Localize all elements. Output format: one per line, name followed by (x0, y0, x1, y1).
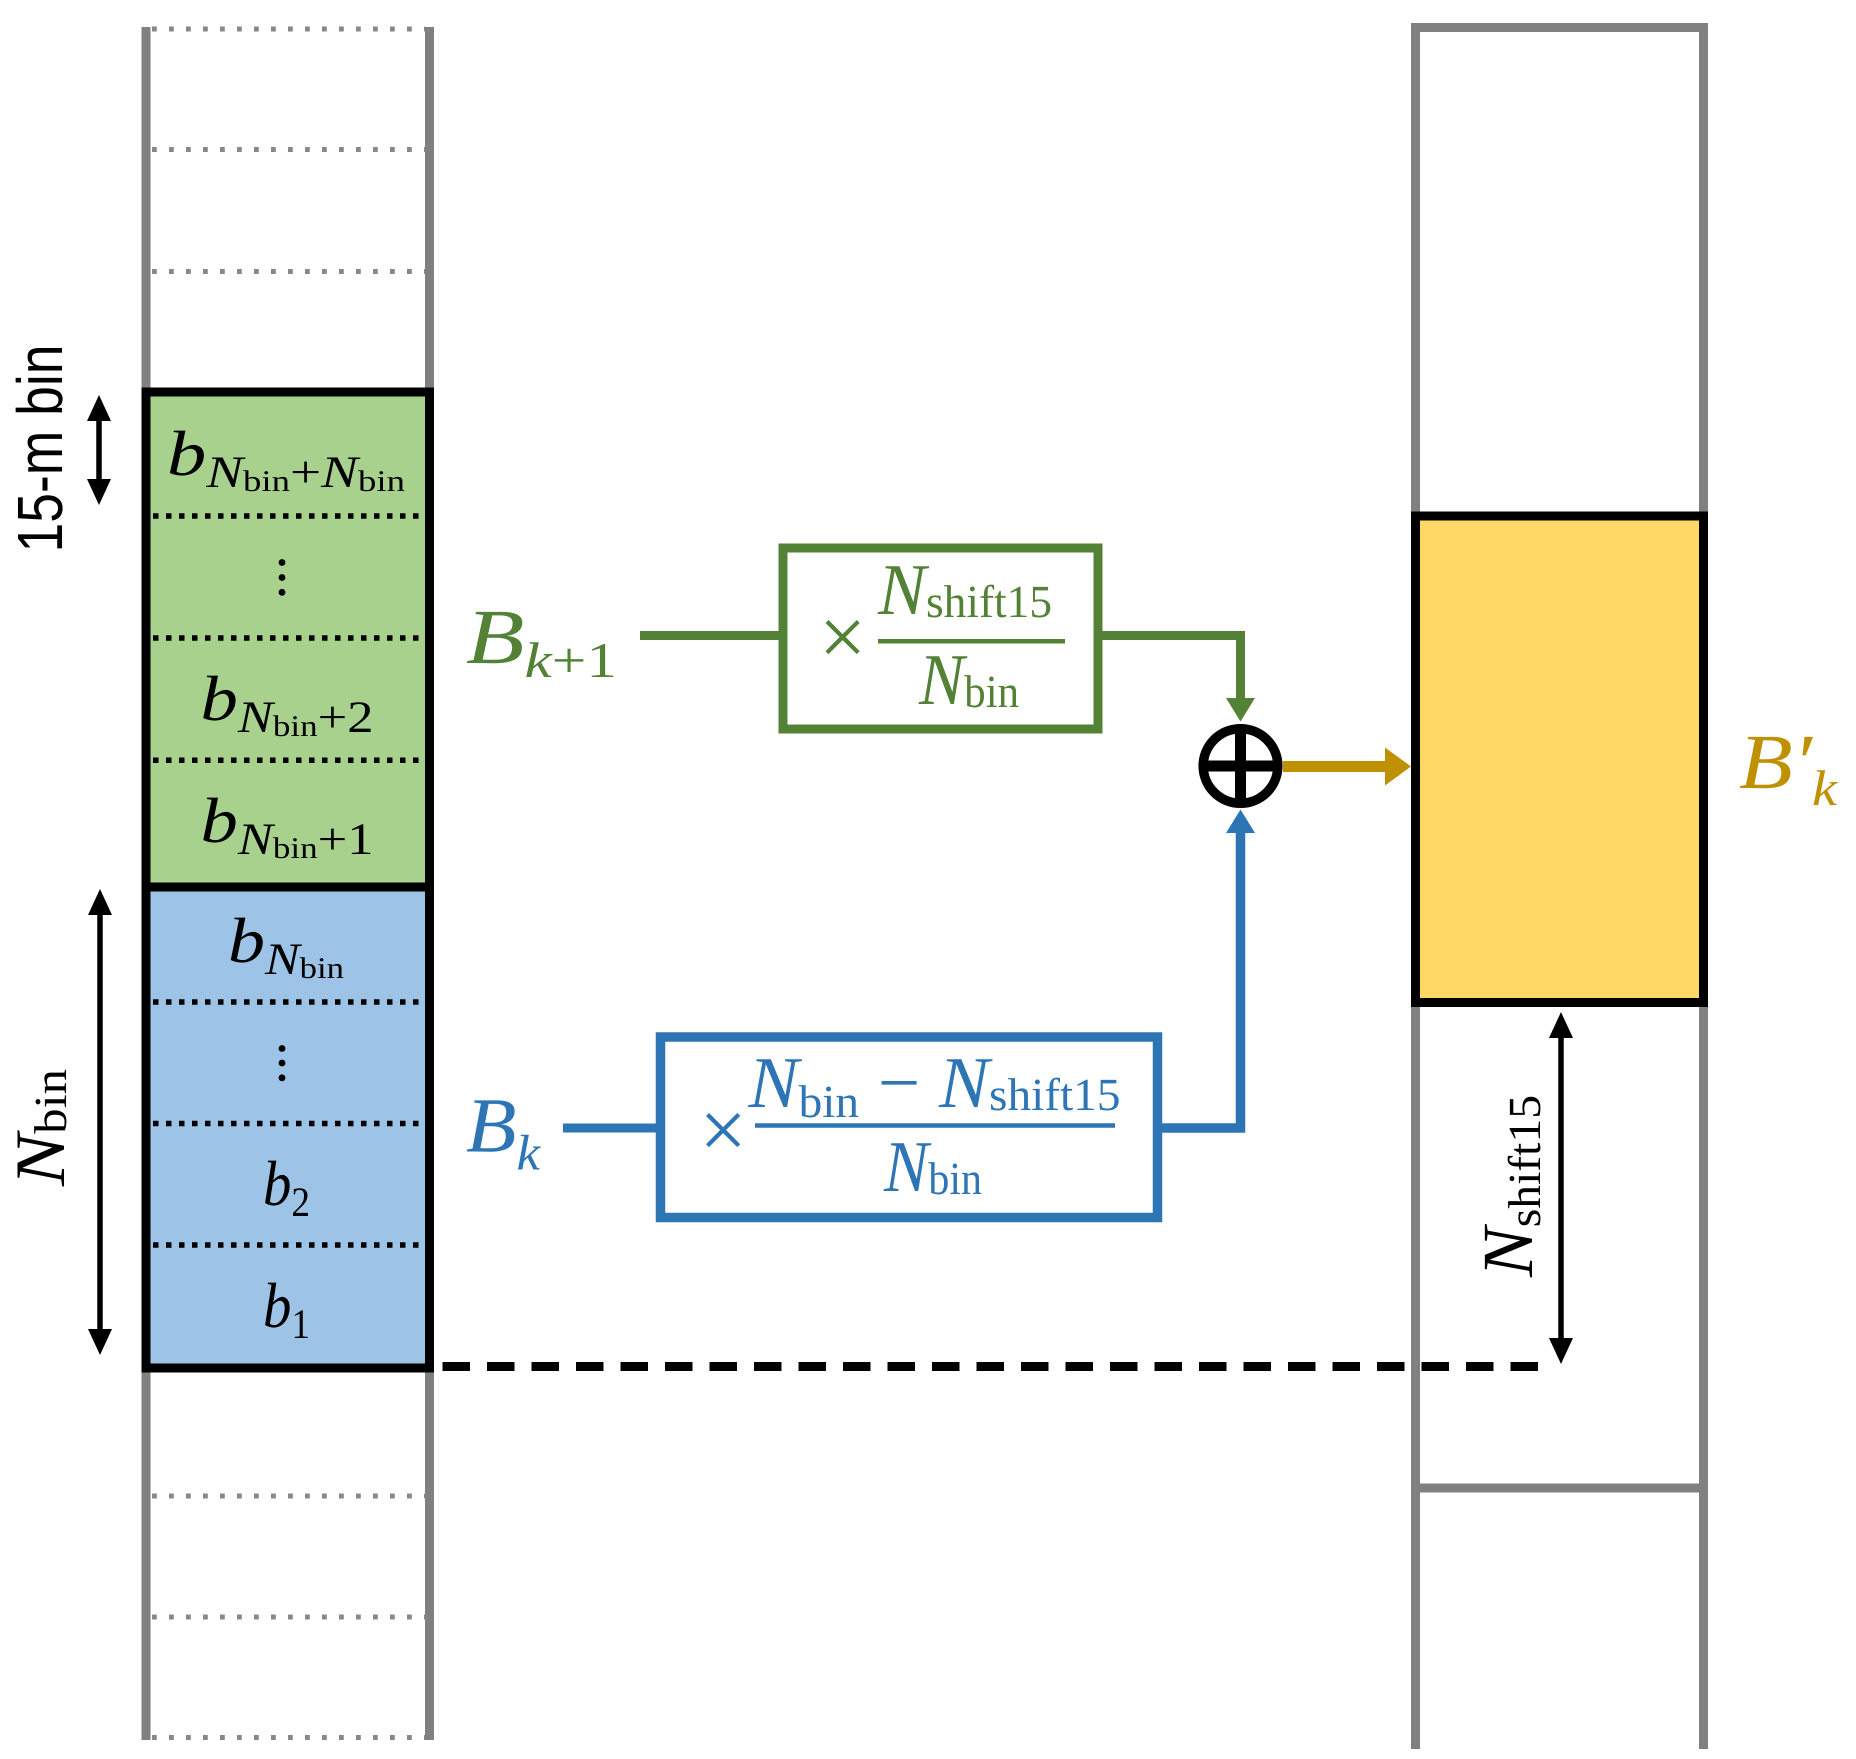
svg-text:B′k: B′k (1739, 718, 1838, 816)
svg-text:×: × (819, 591, 866, 684)
svg-text:15-m bin: 15-m bin (4, 345, 76, 553)
svg-text:Bk+1: Bk+1 (466, 593, 617, 688)
svg-text:Bk: Bk (466, 1082, 541, 1181)
svg-text:Nbin: Nbin (2, 1069, 80, 1187)
svg-text:×: × (699, 1084, 746, 1177)
svg-text:Nshift15: Nshift15 (1468, 1095, 1550, 1278)
